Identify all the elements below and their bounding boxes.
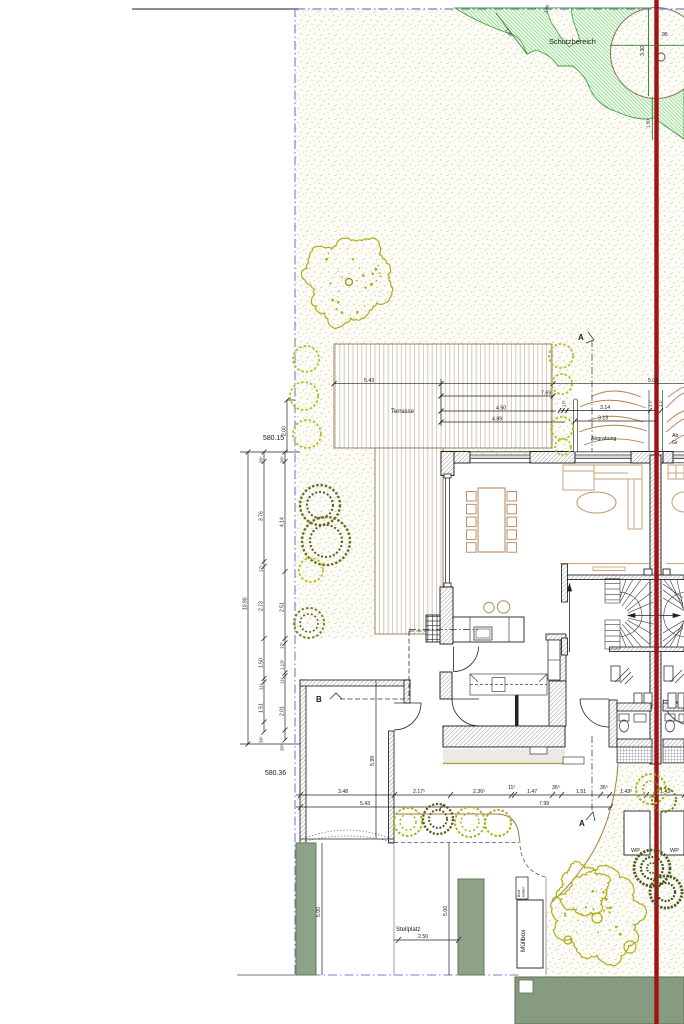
svg-text:3.76: 3.76 — [259, 511, 265, 521]
svg-text:Ab: Ab — [672, 433, 678, 439]
svg-text:A: A — [578, 333, 584, 342]
svg-text:Abgrabung: Abgrabung — [591, 436, 616, 442]
svg-text:7.99: 7.99 — [539, 801, 549, 807]
svg-text:2.17⁵: 2.17⁵ — [413, 789, 425, 795]
svg-text:Gr: Gr — [672, 440, 678, 446]
svg-text:36⁵: 36⁵ — [280, 744, 285, 751]
svg-text:Terrasse: Terrasse — [391, 409, 415, 415]
svg-text:36⁵: 36⁵ — [259, 736, 264, 743]
svg-text:1.50: 1.50 — [646, 119, 651, 128]
svg-text:17⁵: 17⁵ — [259, 565, 264, 572]
svg-text:3.14: 3.14 — [600, 405, 610, 411]
svg-text:2.51: 2.51 — [280, 602, 286, 612]
svg-text:11⁵: 11⁵ — [280, 677, 285, 684]
svg-text:1.51: 1.51 — [576, 789, 586, 795]
svg-text:2.36⁵: 2.36⁵ — [473, 789, 485, 795]
svg-text:4.50: 4.50 — [496, 406, 506, 412]
svg-text:5.00: 5.00 — [443, 906, 449, 916]
svg-text:5.04: 5.04 — [648, 378, 658, 384]
svg-text:4.89: 4.89 — [492, 417, 502, 423]
svg-text:1.51: 1.51 — [259, 703, 265, 713]
svg-text:7.69: 7.69 — [541, 391, 551, 397]
svg-text:3.30: 3.30 — [640, 46, 646, 56]
svg-text:2.50: 2.50 — [418, 934, 428, 940]
svg-text:Schutzbereich: Schutzbereich — [549, 37, 596, 46]
svg-text:17⁵: 17⁵ — [562, 400, 567, 407]
svg-text:kasten: kasten — [522, 887, 526, 897]
svg-text:11⁵: 11⁵ — [508, 785, 516, 791]
svg-text:5.00: 5.00 — [316, 907, 322, 917]
svg-text:A: A — [579, 819, 585, 828]
svg-text:36⁵: 36⁵ — [600, 785, 608, 791]
svg-text:1.50: 1.50 — [259, 658, 265, 668]
svg-text:3.13: 3.13 — [598, 416, 608, 422]
svg-text:580.36: 580.36 — [265, 770, 286, 777]
svg-text:1.1⁵: 1.1⁵ — [648, 399, 653, 407]
svg-text:10.90: 10.90 — [243, 597, 249, 610]
svg-text:3.48: 3.48 — [338, 789, 348, 795]
svg-text:36⁵: 36⁵ — [552, 785, 560, 791]
svg-text:1.47: 1.47 — [527, 789, 537, 795]
svg-text:580.15: 580.15 — [263, 435, 284, 442]
svg-text:Müllbox: Müllbox — [520, 929, 527, 952]
svg-text:1.43⁵: 1.43⁵ — [620, 789, 632, 795]
svg-text:Brief: Brief — [517, 890, 521, 897]
svg-text:17⁵: 17⁵ — [280, 642, 285, 649]
svg-text:1.1⁵: 1.1⁵ — [658, 399, 663, 407]
svg-text:Stellplatz: Stellplatz — [396, 927, 420, 933]
svg-text:36⁵: 36⁵ — [280, 456, 285, 463]
svg-text:4.14: 4.14 — [280, 517, 286, 527]
svg-text:5.43: 5.43 — [364, 378, 374, 384]
svg-text:.95: .95 — [661, 32, 668, 38]
svg-text:11⁵: 11⁵ — [259, 683, 264, 690]
svg-text:2.73: 2.73 — [259, 601, 265, 611]
svg-text:WP: WP — [670, 848, 679, 854]
svg-text:2.01: 2.01 — [280, 706, 286, 716]
svg-text:5.43: 5.43 — [360, 801, 370, 807]
svg-text:5.99: 5.99 — [370, 756, 376, 766]
svg-text:WP: WP — [631, 848, 640, 854]
svg-text:B: B — [316, 695, 322, 704]
svg-text:1.13⁵: 1.13⁵ — [280, 659, 285, 670]
svg-text:36⁵: 36⁵ — [259, 456, 264, 463]
